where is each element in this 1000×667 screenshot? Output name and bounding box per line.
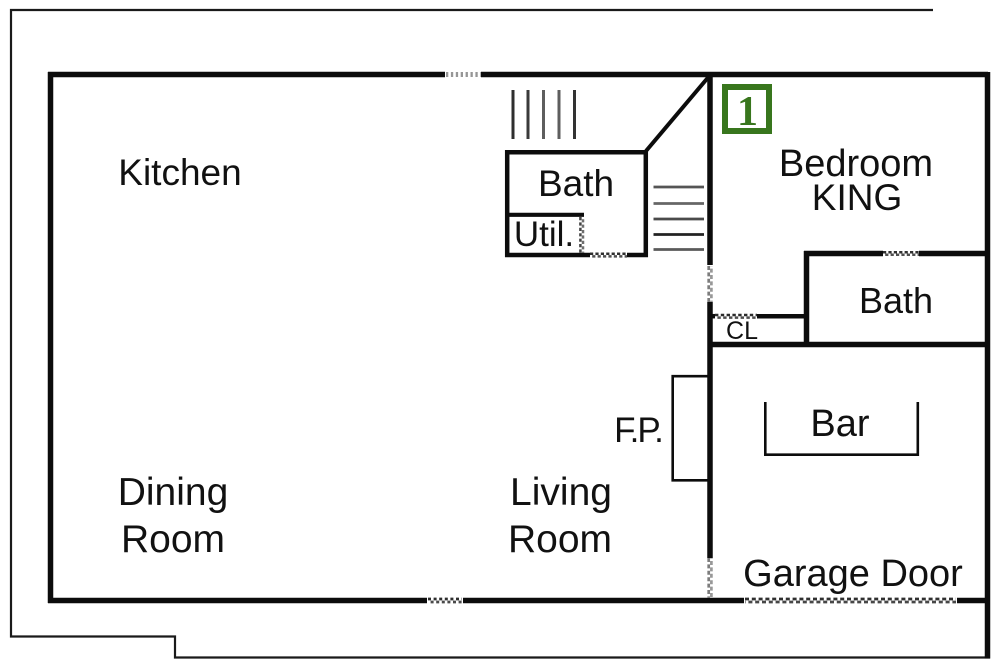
svg-text:Bath: Bath	[859, 280, 933, 321]
svg-text:Room: Room	[121, 518, 225, 561]
svg-text:Bar: Bar	[810, 403, 869, 445]
svg-text:Bath: Bath	[538, 163, 614, 204]
svg-text:F.P.: F.P.	[614, 411, 662, 450]
svg-text:Room: Room	[508, 518, 612, 561]
svg-text:Dining: Dining	[118, 471, 229, 514]
svg-text:Util.: Util.	[514, 215, 574, 254]
svg-text:KING: KING	[812, 177, 902, 218]
svg-text:Living: Living	[510, 471, 612, 514]
svg-text:CL: CL	[726, 317, 758, 345]
svg-text:1: 1	[737, 89, 758, 135]
svg-text:Garage Door: Garage Door	[743, 553, 963, 595]
svg-text:Kitchen: Kitchen	[118, 152, 241, 193]
